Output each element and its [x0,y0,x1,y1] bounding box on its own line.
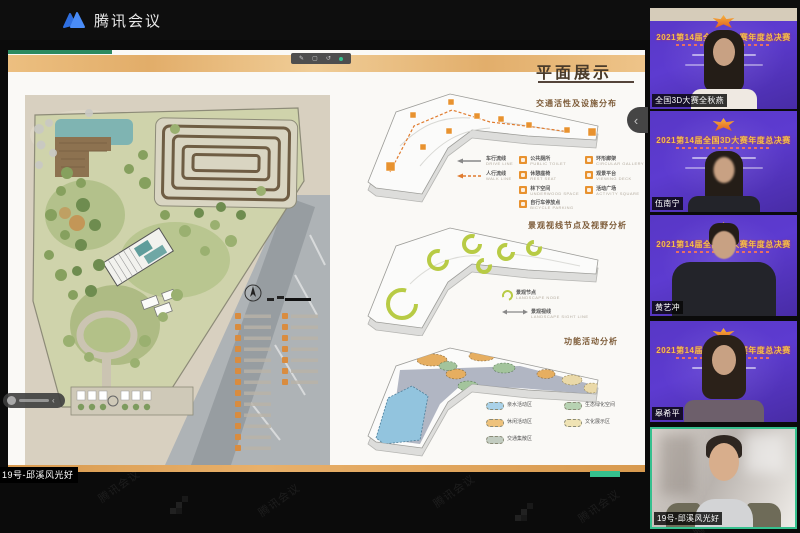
legend-item: 休憩座椅REST SEAT [519,171,579,182]
meeting-window: 腾讯会议 腾讯会议 腾讯会议 腾讯会议 腾讯会议 腾讯会议 腾讯会议 腾讯会议 … [0,0,800,533]
participant-tile[interactable]: 2021第14届全国3D大赛年度总决赛 全国3D大赛全秋燕 [650,8,797,109]
zone-swatch [486,402,504,410]
chevron-left-icon: ‹ [634,114,638,127]
legend-item: 车行流线 DRIVE LINE [457,156,513,167]
bg-blur [660,435,694,495]
watermark-logo-glyph [515,515,521,521]
legend-item: 人行流线 WALK LINE [457,171,513,182]
shared-screen: ✎ ▢ ↺ 平面展示 [8,50,645,472]
share-progress-end [590,471,620,477]
diagram1-legend: 车行流线 DRIVE LINE 人行流线 WALK LINE 公共厕所PUBLI… [457,156,644,211]
legend-item: 景观节点 LANDSCAPE NODE [502,290,589,301]
participant-name: 19号-邱溪风光好 [654,512,722,525]
diagram3-legend: 亲水活动区 生态绿化空间 休闲活动区 文化展示区 交通集散区 [486,402,642,453]
bg-blur [745,433,785,473]
event-emblem-icon [713,118,735,131]
sidebar-collapse-handle[interactable]: ‹ [627,107,648,133]
pen-icon[interactable]: ✎ [299,56,304,62]
toast-text-blur [19,399,49,402]
vehicle-flow-arrow-icon [457,158,483,164]
legend-item: 环形廊架CIRCULAR GALLERY [585,156,644,167]
master-plan-drawing [25,95,330,465]
watermark-logo-glyph [170,508,176,514]
annotation-toolbar[interactable]: ✎ ▢ ↺ [291,53,351,64]
sight-line-arrow-icon [502,309,528,315]
landscape-node-icon [500,288,515,303]
slide-bottom-band [8,465,645,472]
legend-item: 亲水活动区 [486,402,564,419]
participant-name: 皋希平 [652,407,683,420]
bg-deco [676,147,772,149]
legend-item: 交通集散区 [486,436,564,453]
participant-tile[interactable]: 2021第14届全国3D大赛年度总决赛 黄艺冲 [650,215,797,316]
notification-toast[interactable]: ‹ [3,393,65,408]
tencent-meeting-logo-icon [62,9,86,31]
legend-item: 林下空间UNDERWOOD SPACE [519,186,579,197]
parking-area [71,387,193,415]
slide-title: 平面展示 [536,59,612,83]
facility-icon [519,156,527,164]
legend-item: 自行车停放点BICYCLE PARKING [519,200,579,211]
diagram2-legend: 景观节点 LANDSCAPE NODE 景观视线 LANDSCAPE SIGHT… [502,290,589,320]
legend-label: 人行流线 WALK LINE [486,171,512,182]
participant-name: 全国3D大赛全秋燕 [652,94,727,107]
toast-collapse-icon[interactable]: ‹ [52,397,55,405]
legend-item: 文化展示区 [564,419,642,436]
participant-name: 伍南宁 [652,197,683,210]
legend-label: 车行流线 DRIVE LINE [486,156,513,167]
virtual-bg-title: 2021第14届全国3D大赛年度总决赛 [650,135,797,146]
facility-icon [585,171,593,179]
watermark-text: 腾讯会议 [255,480,303,521]
legend-item: 活动广场ACTIVITY SQUARE [585,186,644,197]
participant-name: 黄艺冲 [652,301,683,314]
slide-title-rule [538,81,634,83]
participant-tile[interactable]: 2021第14届全国3D大赛年度总决赛 伍南宁 [650,111,797,212]
loop-path [80,314,134,356]
zone-swatch [564,419,582,427]
pedestrian-flow-arrow-icon [457,173,483,179]
facility-icon [519,200,527,208]
zone-swatch [564,402,582,410]
watermark-text: 腾讯会议 [430,471,478,512]
toast-avatar-icon [7,396,16,405]
watermark-text: 腾讯会议 [575,486,623,527]
zone-swatch [486,436,504,444]
brand-title: 腾讯会议 [94,10,162,31]
legend-item: 生态绿化空间 [564,402,642,419]
legend-item: 景观视线 LANDSCAPE SIGHT LINE [502,309,589,320]
presenter-name-label: 19号-邱溪风光好 [0,467,78,483]
facility-icon [585,186,593,194]
record-dot-icon [339,57,343,61]
facility-icon [585,156,593,164]
shape-icon[interactable]: ▢ [312,56,318,62]
brand: 腾讯会议 [62,9,162,31]
facility-icon [519,171,527,179]
zone-swatch [486,419,504,427]
participant-tile[interactable]: 2021第14届全国3D大赛年度总决赛 皋希平 [650,321,797,422]
undo-icon[interactable]: ↺ [326,56,331,62]
progress-segment [8,50,112,54]
legend-item: 休闲活动区 [486,419,564,436]
facility-icon [519,186,527,194]
legend-item: 观景平台VIEWING DECK [585,171,644,182]
participant-tile-active-speaker[interactable]: 19号-邱溪风光好 [650,427,797,529]
legend-item: 公共厕所PUBLIC TOILET [519,156,579,167]
